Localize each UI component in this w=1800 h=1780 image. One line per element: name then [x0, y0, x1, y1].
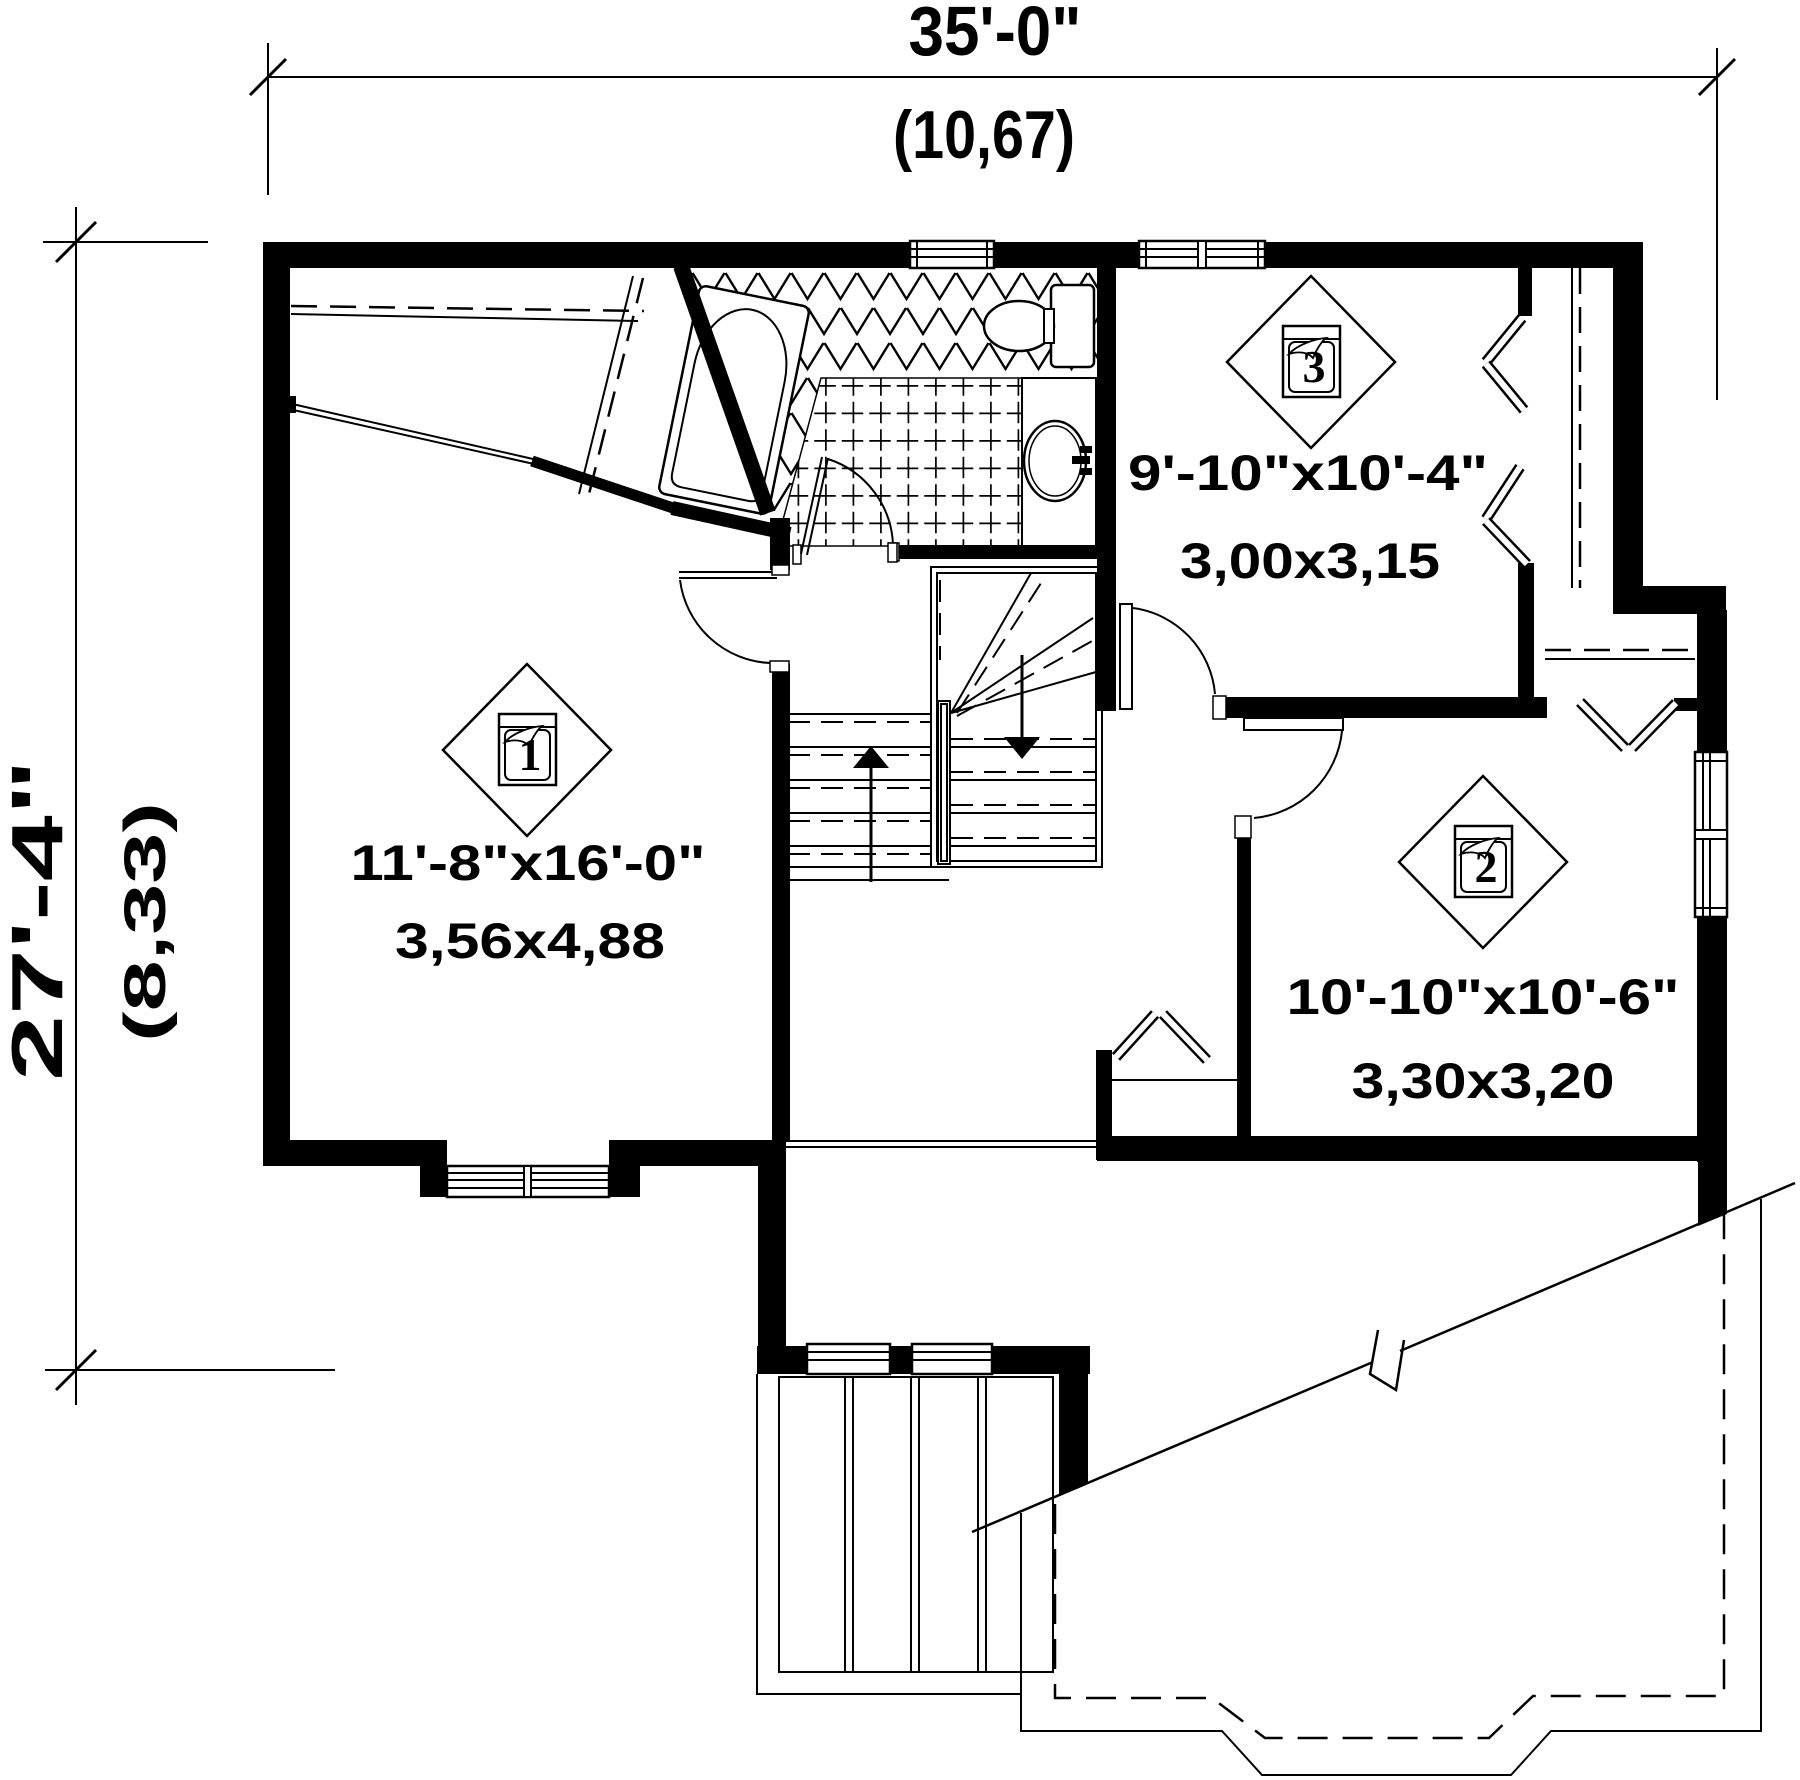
- svg-text:3,56x4,88: 3,56x4,88: [395, 913, 665, 969]
- svg-text:35'-0": 35'-0": [909, 0, 1082, 70]
- svg-text:3: 3: [1303, 341, 1326, 392]
- svg-text:(10,67): (10,67): [893, 97, 1075, 173]
- svg-text:27'-4": 27'-4": [0, 759, 78, 1081]
- svg-text:3,30x3,20: 3,30x3,20: [1352, 1053, 1615, 1109]
- svg-text:10'-10"x10'-6": 10'-10"x10'-6": [1287, 969, 1680, 1025]
- svg-text:3,00x3,15: 3,00x3,15: [1180, 533, 1440, 589]
- svg-text:2: 2: [1475, 841, 1498, 892]
- svg-text:11'-8"x16'-0": 11'-8"x16'-0": [351, 835, 706, 891]
- svg-text:1: 1: [519, 729, 542, 780]
- svg-text:9'-10"x10'-4": 9'-10"x10'-4": [1128, 445, 1488, 501]
- svg-text:(8,33): (8,33): [113, 802, 178, 1042]
